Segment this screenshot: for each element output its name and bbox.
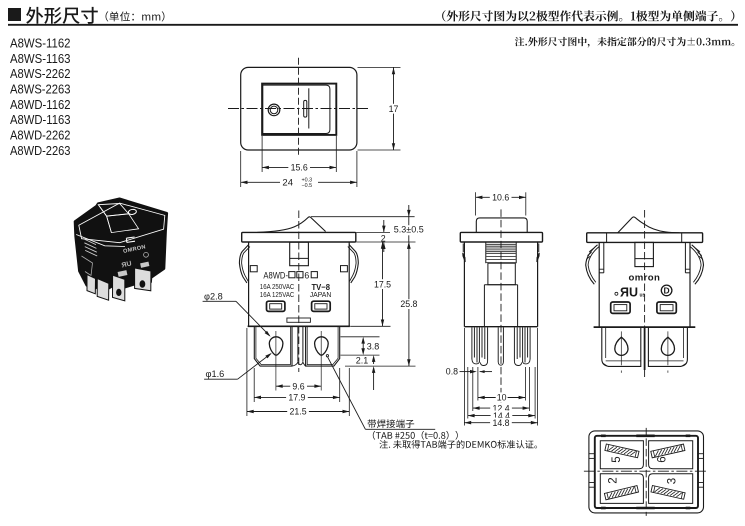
svg-text:5.3±0.5: 5.3±0.5 xyxy=(394,225,424,235)
svg-text:5: 5 xyxy=(611,456,623,462)
svg-text:A8WD-2262: A8WD-2262 xyxy=(10,128,71,143)
svg-text:A8WS-2262: A8WS-2262 xyxy=(10,66,71,81)
svg-text:−0.5: −0.5 xyxy=(302,183,313,189)
svg-text:17: 17 xyxy=(389,104,399,114)
svg-text:3.8: 3.8 xyxy=(367,341,380,351)
svg-text:2: 2 xyxy=(381,233,386,243)
svg-text:9.6: 9.6 xyxy=(292,381,304,391)
svg-text:16A 125VAC: 16A 125VAC xyxy=(260,290,295,299)
svg-text:10.6: 10.6 xyxy=(492,193,509,203)
svg-text:0.8: 0.8 xyxy=(446,367,458,377)
svg-text:omron: omron xyxy=(628,273,660,284)
svg-text:A8WS-2263: A8WS-2263 xyxy=(10,82,71,97)
svg-text:15.6: 15.6 xyxy=(291,163,308,173)
svg-text:10: 10 xyxy=(497,393,507,403)
svg-text:A8WD-: A8WD- xyxy=(263,270,288,280)
svg-text:JAPAN: JAPAN xyxy=(310,290,332,299)
svg-text:2: 2 xyxy=(608,477,620,483)
svg-text:A8WS-1163: A8WS-1163 xyxy=(10,51,71,66)
svg-text:A8WD-1163: A8WD-1163 xyxy=(10,112,71,127)
svg-text:A8WD-1162: A8WD-1162 xyxy=(10,97,71,112)
svg-text:17.5: 17.5 xyxy=(374,279,391,289)
svg-text:6: 6 xyxy=(304,270,309,280)
svg-text:D: D xyxy=(664,286,670,296)
svg-text:φ2.8: φ2.8 xyxy=(204,291,223,301)
svg-text:φ1.6: φ1.6 xyxy=(206,369,225,379)
svg-text:6: 6 xyxy=(657,456,669,462)
svg-text:A8WD-2263: A8WD-2263 xyxy=(10,143,71,158)
svg-text:14.8: 14.8 xyxy=(492,418,509,428)
svg-text:ЯU: ЯU xyxy=(620,285,638,299)
svg-text:25.8: 25.8 xyxy=(400,299,417,309)
svg-text:21.5: 21.5 xyxy=(290,407,307,417)
svg-text:A8WS-1162: A8WS-1162 xyxy=(10,36,71,51)
svg-text:3: 3 xyxy=(667,478,679,484)
svg-text:24: 24 xyxy=(282,178,293,189)
svg-text:us: us xyxy=(640,292,646,298)
svg-text:2.1: 2.1 xyxy=(356,356,369,366)
svg-text:17.9: 17.9 xyxy=(288,393,305,403)
